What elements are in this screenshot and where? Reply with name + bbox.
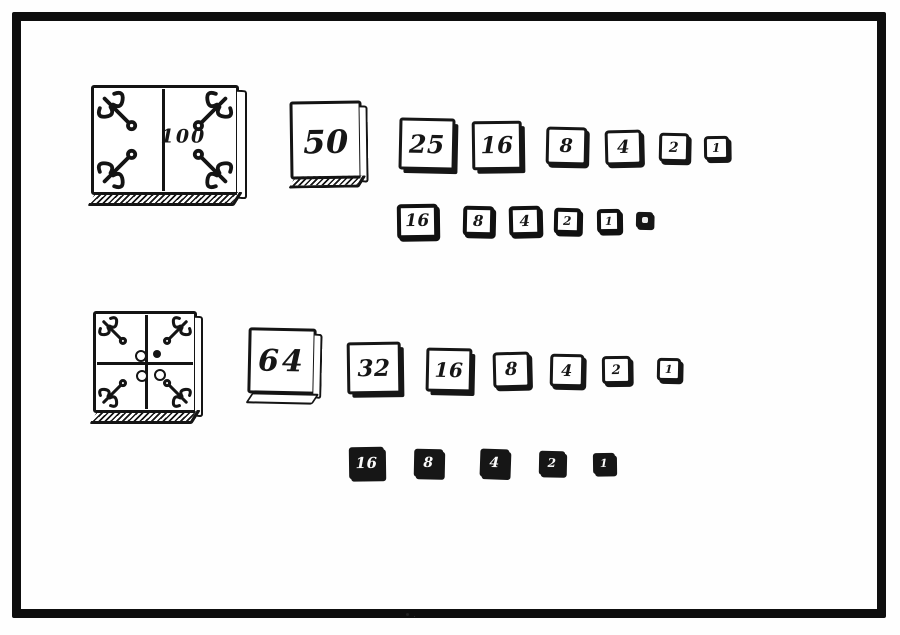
top-row2-block-2: 2	[554, 208, 582, 235]
top-row1-block-8: 8	[546, 127, 588, 166]
corner-flourish-icon	[159, 315, 193, 349]
weight-label: 2	[547, 457, 556, 469]
block-edge-bottom	[288, 175, 366, 188]
weight-label: 1	[665, 364, 673, 375]
top-row1-block-1: 1	[704, 136, 729, 160]
corner-flourish-icon	[97, 375, 131, 409]
block-edge-bottom	[89, 410, 201, 424]
top-row1-block-25: 25	[398, 117, 455, 170]
bottom-row1-block-8: 8	[493, 352, 531, 389]
weight-label: 32	[357, 356, 390, 379]
ink-speck	[406, 613, 409, 616]
corner-flourish-icon	[95, 89, 143, 137]
top-row2-block-4: 4	[509, 206, 542, 237]
block-face	[93, 311, 197, 413]
weight-label: 25	[409, 131, 445, 157]
block-edge-right	[237, 90, 247, 200]
weight-label: 4	[617, 138, 630, 156]
weight-label: 64	[258, 347, 306, 378]
weight-label: 16	[480, 134, 513, 157]
corner-flourish-icon	[97, 315, 131, 349]
top-row2-block-small	[636, 212, 653, 228]
weight-label: 100	[161, 127, 207, 146]
woodcut-plate: 100 50 25 16 8 4 2 1 16 8 4	[0, 0, 900, 635]
block-divider-horizontal	[97, 362, 193, 365]
top-row1-block-4: 4	[605, 130, 643, 166]
bottom-row1-block-4: 4	[550, 354, 585, 388]
weight-label: 8	[559, 136, 573, 155]
weight-label: 8	[505, 361, 518, 379]
block-edge-right	[313, 333, 322, 399]
dot-open-icon	[136, 370, 148, 382]
bottom-row2-block-16: 16	[349, 447, 384, 479]
block-edge-bottom	[87, 192, 243, 206]
corner-flourish-icon	[187, 143, 235, 191]
weight-label: 16	[355, 455, 377, 470]
weight-label: 4	[489, 456, 500, 470]
bottom-row2-block-4: 4	[480, 449, 510, 478]
bottom-row1-block-64: 64	[247, 327, 316, 394]
bottom-row1-block-16: 16	[426, 348, 473, 393]
weight-label: 50	[303, 125, 349, 158]
weight-label: 4	[561, 362, 573, 378]
block-edge-right	[195, 316, 203, 417]
weight-label: 2	[612, 363, 622, 376]
bottom-row2-block-8: 8	[414, 449, 444, 478]
bottom-row2-block-1: 1	[593, 453, 615, 474]
weight-label: 1	[600, 458, 608, 469]
top-row2-block-8: 8	[463, 206, 495, 237]
weight-label: 2	[563, 215, 572, 227]
top-row2-block-16: 16	[397, 204, 438, 240]
bottom-row2-block-2: 2	[539, 451, 565, 476]
weight-label: 2	[669, 140, 680, 154]
top-row2-block-1: 1	[597, 209, 621, 233]
top-row1-block-16: 16	[472, 121, 523, 171]
top-row1-block-2: 2	[659, 133, 690, 163]
corner-flourish-icon	[95, 143, 143, 191]
weight-label: 8	[423, 456, 434, 470]
top-large-block-100: 100	[91, 85, 239, 195]
weight-label: 16	[405, 213, 430, 230]
corner-flourish-icon	[159, 375, 193, 409]
weight-label: 4	[519, 213, 530, 228]
bottom-row1-block-2: 2	[602, 356, 631, 384]
dot-filled-icon	[153, 350, 161, 358]
weight-label: 16	[434, 360, 463, 381]
dot-open-icon	[154, 369, 166, 381]
weight-label: 1	[605, 215, 613, 226]
bottom-large-block-quadrants	[93, 311, 197, 413]
block-edge-right	[360, 105, 369, 182]
bottom-row1-block-32: 32	[347, 342, 402, 395]
top-row1-block-50: 50	[289, 101, 362, 180]
block-face: 100	[91, 85, 239, 195]
block-edge-bottom	[245, 392, 319, 404]
weight-label: 1	[712, 142, 721, 154]
weight-label: 8	[473, 213, 484, 228]
bottom-row1-block-1: 1	[657, 358, 681, 381]
